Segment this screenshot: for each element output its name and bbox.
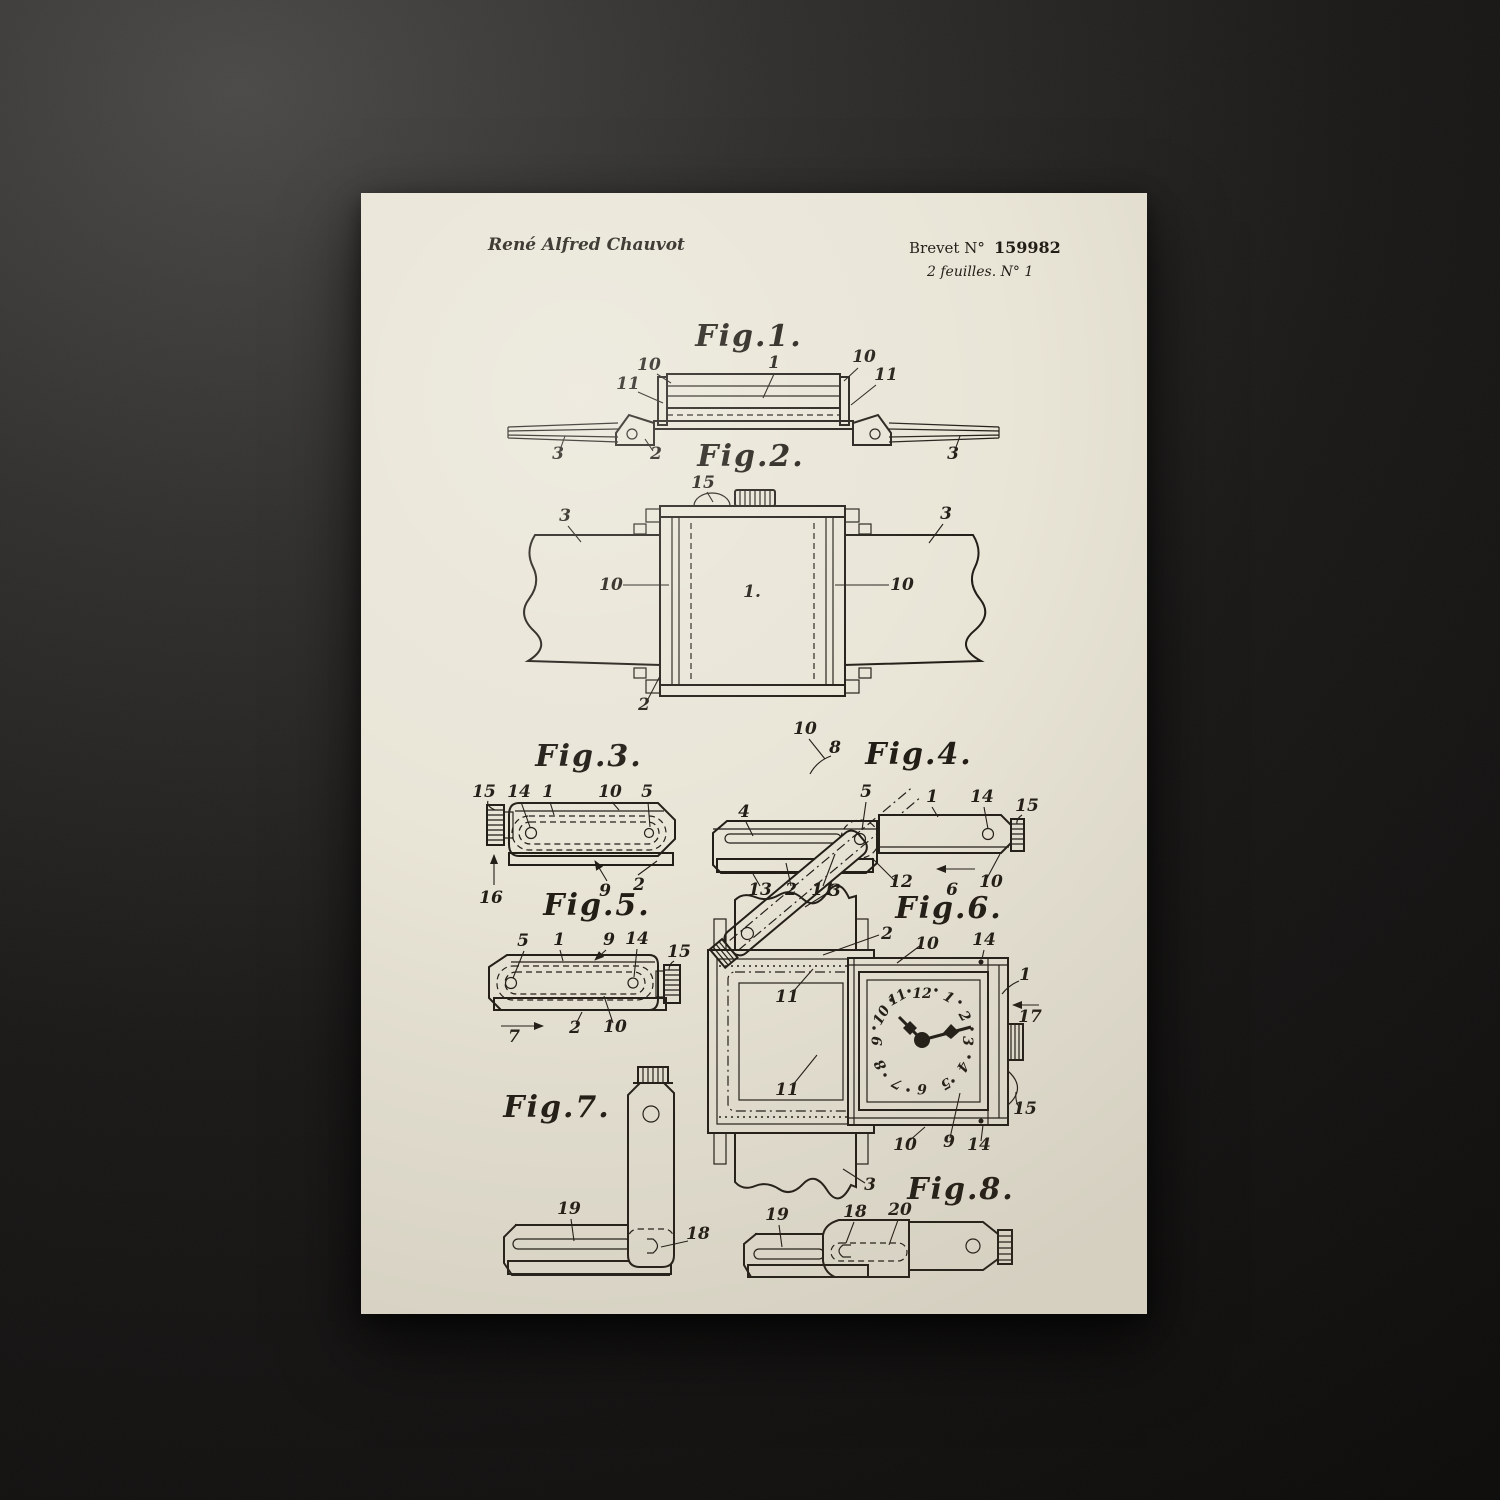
fig5-label: 5 (517, 931, 529, 951)
fig4-label: 14 (970, 787, 994, 807)
fig3-label: 16 (479, 888, 503, 908)
fig1-title: Fig.1. (694, 319, 802, 354)
sheet-info: 2 feuilles. N° 1 (926, 264, 1033, 280)
fig2-title: Fig.2. (696, 439, 804, 474)
crown-winder-drawing (998, 1230, 1012, 1264)
fig1-label: 1 (768, 353, 780, 373)
fig5-drawing (489, 955, 680, 1010)
fig3-group: Fig.3. 15 14 1 10 5 16 9 2 (472, 739, 675, 908)
fig8-group: Fig.8. 19 18 20 (744, 1172, 1015, 1277)
fig5-label: 15 (667, 942, 691, 962)
fig3-label: 15 (472, 782, 496, 802)
fig3-drawing (487, 803, 675, 865)
fig6-label: 1 (1019, 965, 1031, 985)
crown-winder-drawing (634, 1067, 672, 1083)
fig1-label: 3 (552, 444, 564, 464)
fig8-label: 20 (887, 1200, 912, 1220)
fig4-label: 10 (979, 872, 1003, 892)
fig1-label: 11 (616, 374, 640, 394)
fig6-label: 14 (972, 930, 996, 950)
fig8-drawing (744, 1220, 1012, 1277)
fig6-title: Fig.6. (894, 891, 1002, 926)
fig1-label: 3 (947, 444, 959, 464)
dial-numeral: 6 (917, 1080, 927, 1096)
fig8-label: 18 (843, 1202, 867, 1222)
author-name: René Alfred Chauvot (487, 235, 685, 255)
fig5-label: 10 (603, 1017, 627, 1037)
brevet-label: Brevet N° (909, 239, 985, 257)
fig2-group: Fig.2. (524, 439, 985, 715)
fig3-label: 5 (641, 782, 653, 802)
fig4-label: 13 (748, 880, 772, 900)
fig2-label: 2 (637, 695, 650, 715)
fig4-label: 1 (926, 787, 938, 807)
fig5-label: 14 (625, 929, 649, 949)
fig6-label: 10 (893, 1135, 917, 1155)
fig2-label: 1. (743, 582, 761, 602)
dial-numeral: 12 (912, 986, 932, 1002)
fig6-label: 3 (829, 881, 841, 901)
fig4-label: 4 (738, 802, 750, 822)
fig7-title: Fig.7. (502, 1090, 610, 1125)
fig7-group: Fig.7. 19 18 (502, 1067, 710, 1275)
fig6-label: 17 (1018, 1007, 1042, 1027)
fig2-label: 15 (691, 473, 715, 493)
fig6-label: 3 (864, 1175, 876, 1195)
fig3-title: Fig.3. (534, 739, 642, 774)
fig4-label: 5 (860, 782, 872, 802)
fig6-label: 11 (775, 987, 799, 1007)
fig1-drawing (508, 374, 999, 445)
fig1-label: 2 (649, 444, 662, 464)
fig4-title: Fig.4. (864, 737, 972, 772)
fig1-label: 10 (637, 355, 661, 375)
fig5-label: 9 (603, 930, 615, 950)
fig2-label: 10 (890, 575, 914, 595)
dial-numeral: 3 (959, 1036, 975, 1046)
fig2-label: 10 (599, 575, 623, 595)
fig6-label: 9 (943, 1132, 955, 1152)
fig4-label: 8 (828, 738, 841, 758)
fig4-label: 15 (1015, 796, 1039, 816)
fig6-label: 14 (967, 1135, 991, 1155)
crown-winder-drawing (1008, 1024, 1023, 1060)
fig2-label: 3 (559, 506, 571, 526)
fig5-group: Fig.5. 5 1 9 14 15 7 2 10 (489, 888, 691, 1047)
fig3-label: 10 (598, 782, 622, 802)
fig6-label: 10 (915, 934, 939, 954)
fig1-label: 11 (874, 365, 898, 385)
fig7-label: 18 (686, 1224, 710, 1244)
fig3-label: 1 (542, 782, 554, 802)
fig5-label: 1 (553, 930, 565, 950)
fig1-label: 10 (852, 347, 876, 367)
dial-numeral: 9 (870, 1036, 886, 1046)
header: René Alfred Chauvot Brevet N° 159982 2 f… (487, 235, 1061, 280)
patent-sheet: René Alfred Chauvot Brevet N° 159982 2 f… (361, 193, 1147, 1314)
fig7-label: 19 (557, 1199, 581, 1219)
fig6-label: 2 (880, 924, 893, 944)
fig8-label: 19 (765, 1205, 789, 1225)
crown-winder-drawing (731, 490, 779, 506)
fig4-label: 10 (793, 719, 817, 739)
fig5-label: 2 (568, 1018, 581, 1038)
fig2-label: 3 (940, 504, 952, 524)
fig6-label: 11 (775, 1080, 799, 1100)
fig4-label: 2 (784, 880, 797, 900)
fig5-title: Fig.5. (542, 888, 650, 923)
fig5-label: 7 (508, 1027, 520, 1047)
fig8-title: Fig.8. (906, 1172, 1014, 1207)
fig3-label: 14 (507, 782, 531, 802)
fig4-label: 12 (889, 872, 913, 892)
fig6-label: 15 (1013, 1099, 1037, 1119)
brevet-number: 159982 (994, 238, 1061, 257)
patent-drawing: René Alfred Chauvot Brevet N° 159982 2 f… (361, 193, 1147, 1314)
